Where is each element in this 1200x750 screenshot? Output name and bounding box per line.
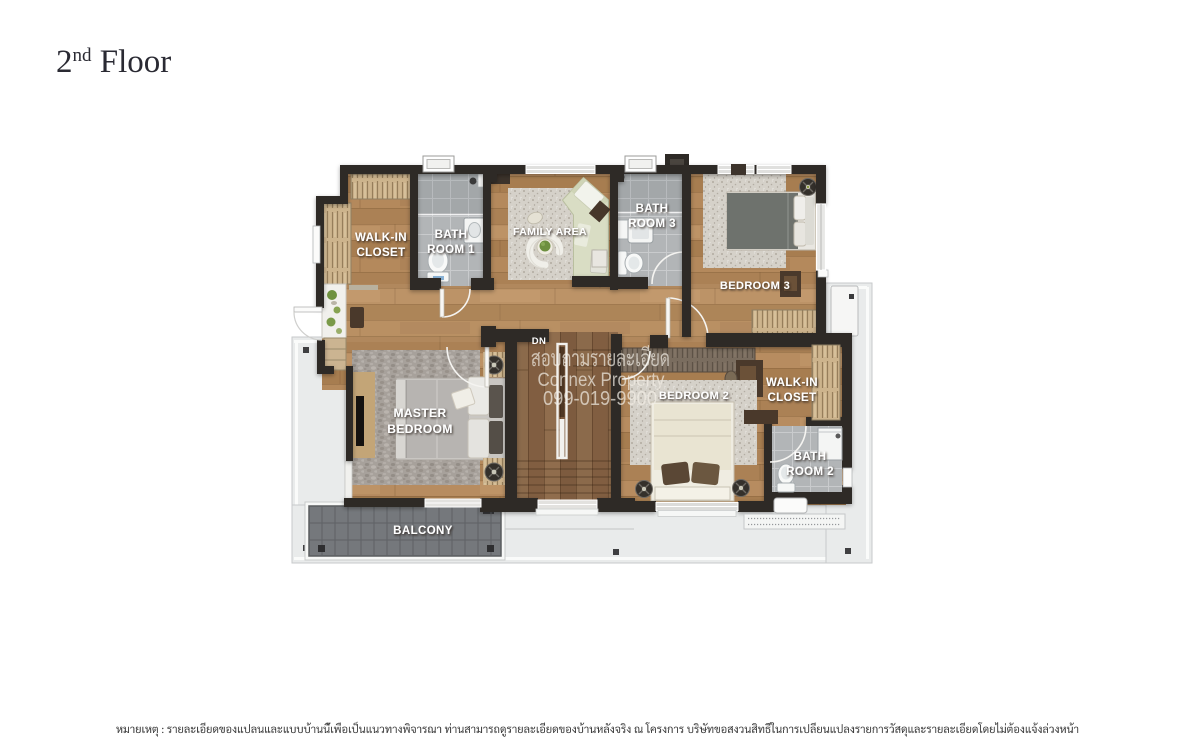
svg-text:WALK-IN: WALK-IN xyxy=(355,232,407,244)
svg-text:BEDROOM: BEDROOM xyxy=(387,422,452,436)
svg-text:BEDROOM 3: BEDROOM 3 xyxy=(720,280,790,292)
svg-text:FAMILY AREA: FAMILY AREA xyxy=(513,226,587,238)
svg-text:ROOM 3: ROOM 3 xyxy=(628,218,676,230)
svg-text:BATH: BATH xyxy=(794,451,827,463)
svg-text:ROOM 1: ROOM 1 xyxy=(427,244,475,256)
svg-text:CLOSET: CLOSET xyxy=(767,392,816,404)
svg-text:BATH: BATH xyxy=(435,229,468,241)
svg-text:DN: DN xyxy=(532,336,547,347)
svg-text:BATH: BATH xyxy=(636,203,669,215)
svg-text:ROOM 2: ROOM 2 xyxy=(786,466,834,478)
svg-text:CLOSET: CLOSET xyxy=(356,247,405,259)
svg-text:WALK-IN: WALK-IN xyxy=(766,377,818,389)
svg-text:MASTER: MASTER xyxy=(393,406,446,420)
svg-text:BEDROOM 2: BEDROOM 2 xyxy=(659,390,729,402)
svg-text:099-019-9900: 099-019-9900 xyxy=(543,387,657,410)
svg-text:BALCONY: BALCONY xyxy=(393,525,453,537)
